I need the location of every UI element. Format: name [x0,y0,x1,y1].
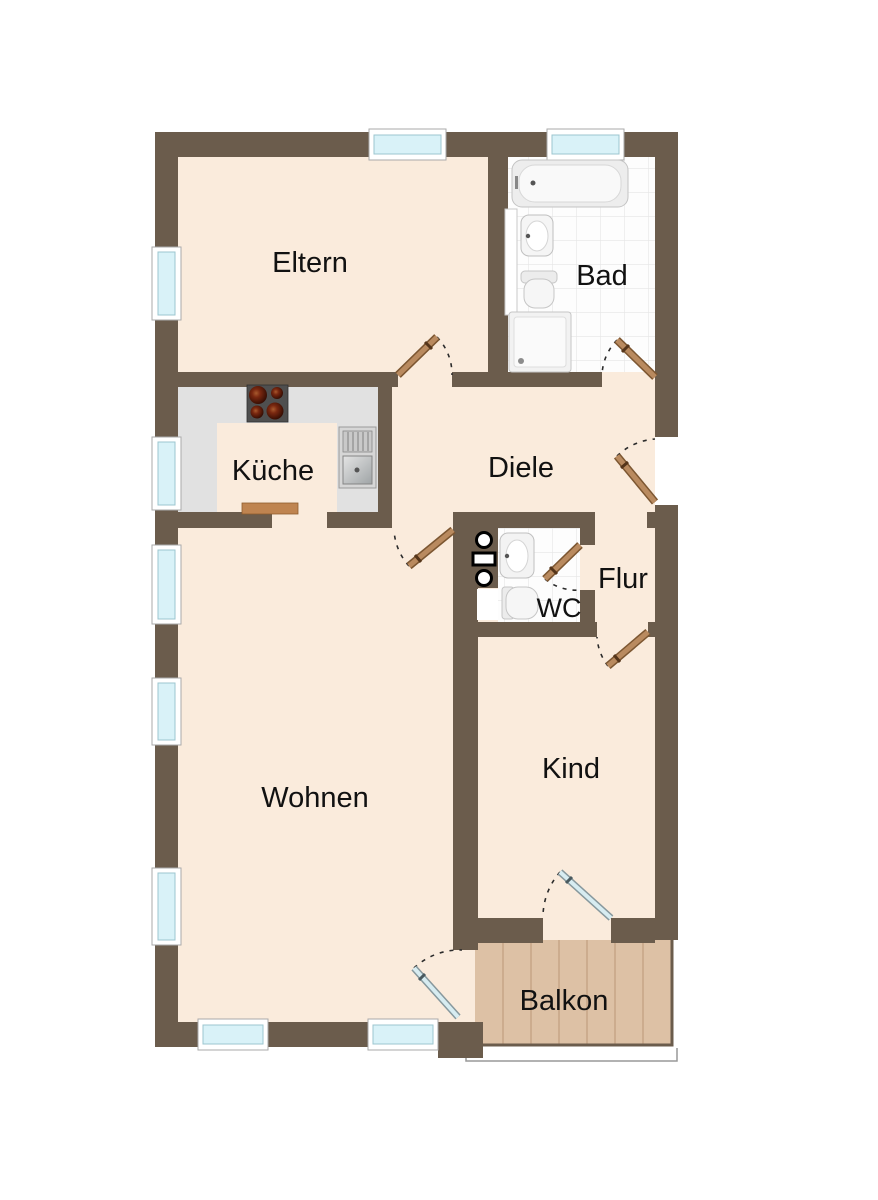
wall-kind-bottom-left [453,918,543,943]
wall-wohnen-kind-divider [453,528,478,950]
label-wc: WC [537,593,582,623]
kitchen-sink-icon [339,427,376,488]
window-wohnen-left-1 [152,545,181,624]
label-wohnen: Wohnen [261,782,369,814]
floor-plan: Eltern Bad Küche Diele Flur WC Wohnen Ki… [0,0,878,1200]
window-wohnen-left-2 [152,678,181,745]
window-eltern-top [369,129,446,160]
wall-wc-top [453,512,595,528]
label-flur: Flur [598,563,648,595]
label-bad: Bad [576,260,628,292]
wall-right-upper [655,132,678,437]
utility-shaft-icons [473,533,495,586]
wall-kind-bottom-right [611,918,655,943]
wall-wc-right-post-bottom [580,590,595,622]
window-eltern-left [152,247,181,320]
shower-icon [509,312,571,372]
wall-kueche-diele [378,387,392,512]
label-diele: Diele [488,452,554,484]
stove-icon [247,385,288,422]
floor-plan-canvas: Eltern Bad Küche Diele Flur WC Wohnen Ki… [0,0,878,1200]
wall-mid-segment [327,512,392,528]
pass-through-counter [242,503,298,514]
wall-bottom-corner-post [438,1022,483,1058]
window-wohnen-bottom-2 [368,1019,438,1050]
window-bad-top [547,129,624,160]
label-kind: Kind [542,753,600,785]
window-wohnen-left-3 [152,868,181,945]
wc-niche [477,589,498,620]
wall-mid-right-stub [647,512,678,528]
wall-wc-right-post-top [580,528,595,545]
bath-sink-icon [521,215,553,256]
label-balkon: Balkon [520,985,609,1017]
bath-partition [505,209,517,315]
wall-bad-bottom [452,372,602,387]
window-kueche-left [152,437,181,510]
wall-kueche-bottom [155,512,272,528]
wc-toilet-icon [502,587,538,619]
window-wohnen-bottom-1 [198,1019,268,1050]
bathtub-icon [512,160,628,207]
label-kueche: Küche [232,455,314,487]
wc-sink-icon [500,533,534,578]
wall-kind-top [478,622,597,637]
bath-toilet-icon [521,271,557,308]
label-eltern: Eltern [272,247,348,279]
wall-right-lower [655,505,678,940]
wc-fixtures [473,533,538,621]
